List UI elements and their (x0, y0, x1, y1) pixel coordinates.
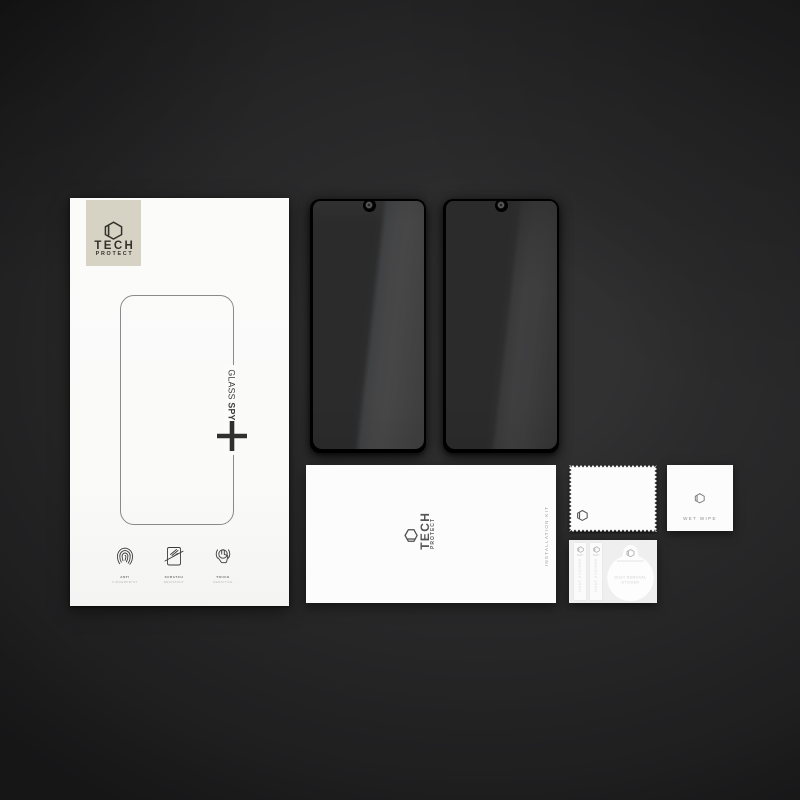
svg-text:STICKER: STICKER (622, 581, 640, 585)
svg-text:DUST REMOVAL: DUST REMOVAL (614, 576, 646, 580)
